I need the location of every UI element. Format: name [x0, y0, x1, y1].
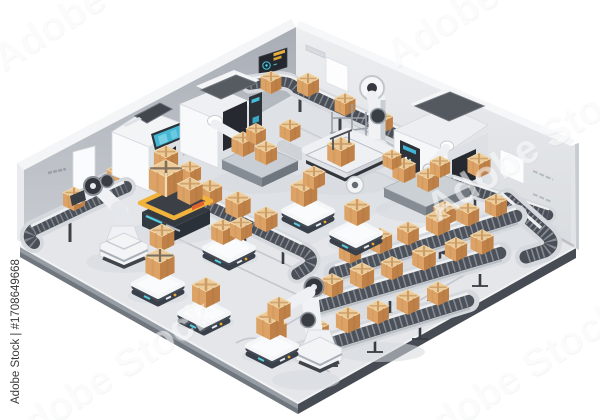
- svg-text:Adobe Stock | #1708649668: Adobe Stock | #1708649668: [10, 259, 22, 404]
